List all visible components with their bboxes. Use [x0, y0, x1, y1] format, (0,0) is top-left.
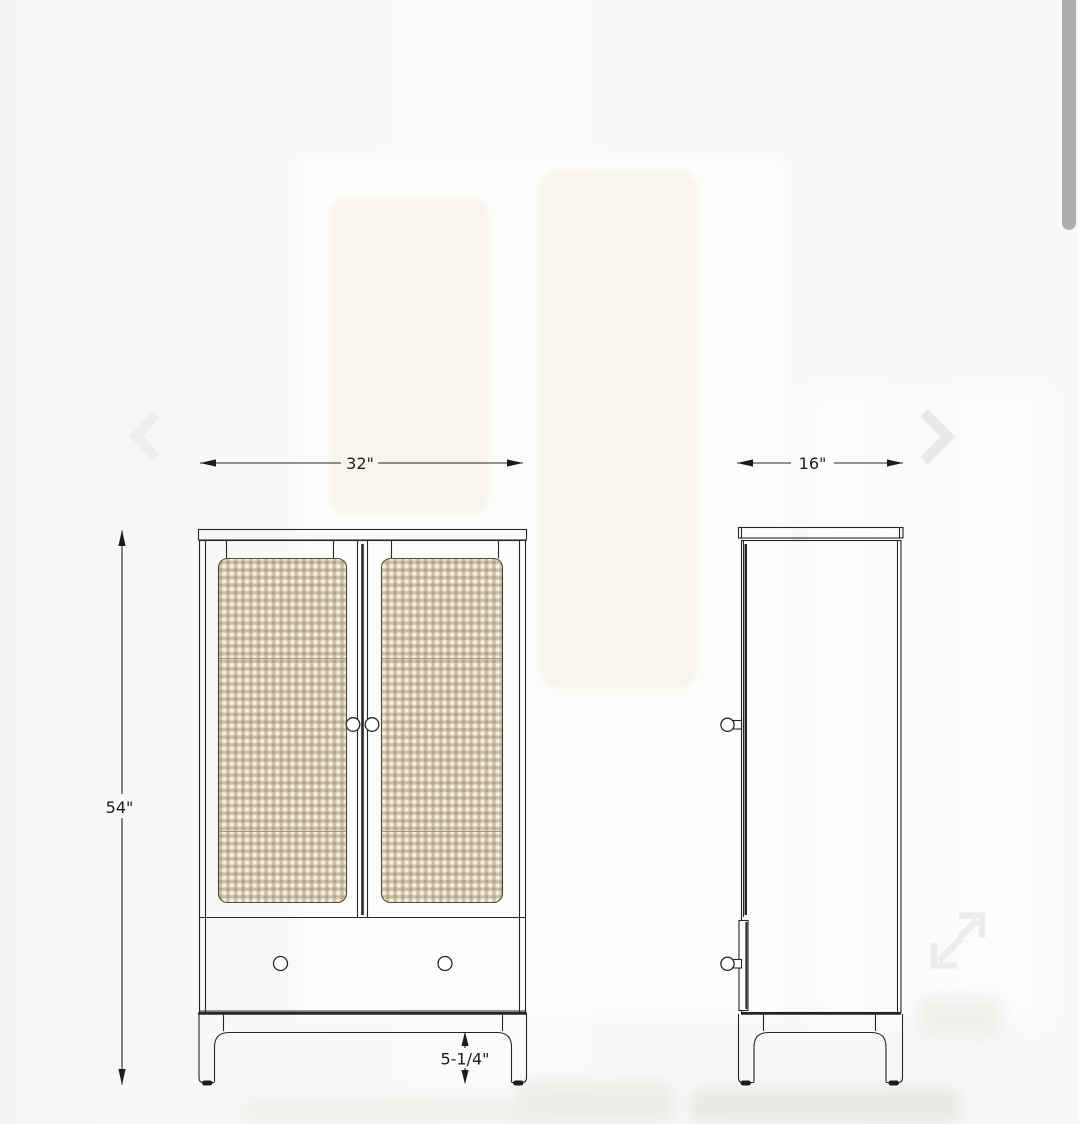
- side-door-knob: [721, 718, 734, 731]
- carousel-prev-button[interactable]: [126, 406, 168, 466]
- dim-leg-clearance-label: 5-1/4": [440, 1050, 489, 1069]
- arrowhead-up-icon: [461, 1032, 468, 1046]
- front-leg-left: [199, 1014, 215, 1083]
- arrowhead-right-icon: [887, 459, 903, 466]
- door-knob-right: [365, 718, 379, 732]
- side-leg-back: [886, 1014, 903, 1083]
- side-body: [742, 541, 902, 1013]
- product-image-viewer: 32" 16" 54" 5-: [0, 0, 1079, 1124]
- side-foot-front: [741, 1081, 752, 1086]
- front-foot-right: [513, 1081, 524, 1086]
- dim-height: 54": [102, 530, 137, 1085]
- door-knob-left: [346, 718, 360, 732]
- dim-height-label: 54": [106, 798, 134, 817]
- dim-leg-clearance: 5-1/4": [436, 1032, 494, 1084]
- side-apron: [754, 1033, 886, 1083]
- dim-depth-label: 16": [799, 454, 827, 473]
- dimension-diagram: 32" 16" 54" 5-: [0, 0, 1079, 1124]
- arrowhead-down-icon: [118, 1069, 125, 1085]
- side-apron-joints: [764, 1014, 876, 1031]
- front-view: [198, 530, 527, 1086]
- carousel-next-button[interactable]: [914, 406, 956, 468]
- side-top-board: [739, 528, 904, 539]
- arrowhead-up-icon: [118, 530, 125, 546]
- arrowhead-left-icon: [737, 459, 753, 466]
- arrowhead-right-icon: [507, 459, 523, 466]
- dim-width: 32": [200, 454, 523, 473]
- cane-panel-left: [219, 559, 347, 903]
- side-foot-back: [889, 1081, 900, 1086]
- side-view: [721, 528, 903, 1086]
- cane-panel-right: [382, 559, 503, 903]
- chevron-left-icon: [126, 406, 168, 466]
- side-leg-front: [739, 1014, 755, 1083]
- expand-arrows-icon: [926, 908, 988, 972]
- front-apron-joints: [224, 1014, 503, 1031]
- drawer-knob-right: [438, 957, 452, 971]
- front-foot-left: [202, 1081, 213, 1086]
- expand-image-button[interactable]: [926, 908, 988, 972]
- scrollbar-thumb[interactable]: [1062, 0, 1076, 230]
- side-drawer-knob: [721, 957, 734, 970]
- chevron-right-icon: [914, 406, 956, 468]
- side-top-board-caps: [742, 528, 900, 539]
- drawer-knob-left: [274, 957, 288, 971]
- front-top-board: [199, 530, 527, 541]
- dim-width-label: 32": [346, 454, 374, 473]
- arrowhead-left-icon: [200, 459, 216, 466]
- dim-depth: 16": [737, 454, 903, 473]
- arrowhead-down-icon: [461, 1070, 468, 1084]
- front-leg-right: [512, 1014, 527, 1083]
